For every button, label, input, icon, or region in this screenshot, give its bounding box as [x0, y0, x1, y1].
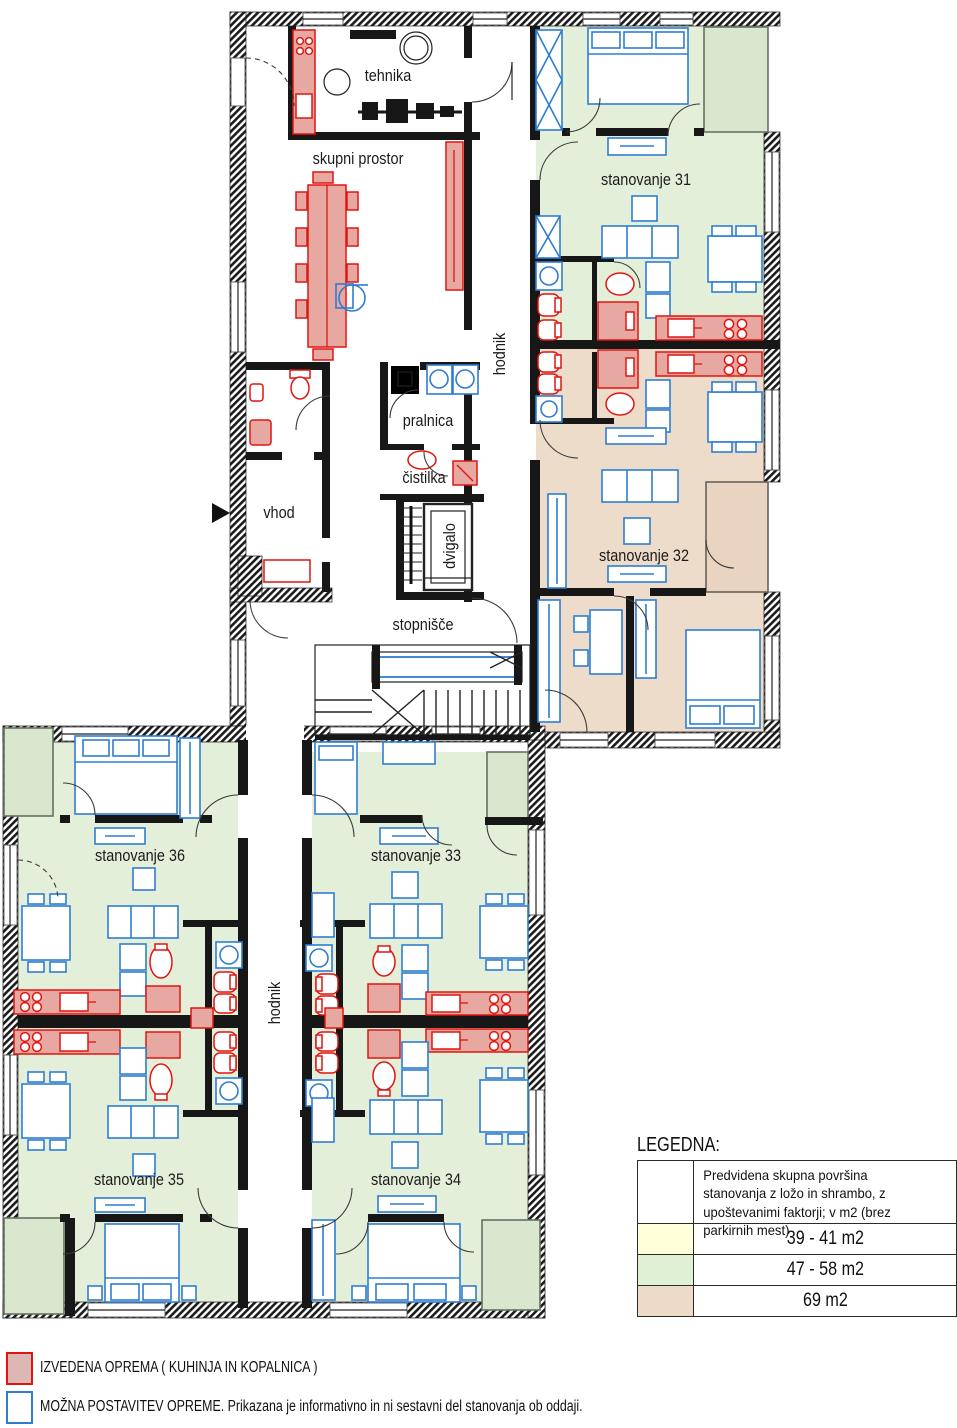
room-label-pralnica: pralnica	[403, 411, 454, 431]
legend-swatch-yellow	[638, 1224, 694, 1254]
common-room-cabinet	[446, 142, 463, 290]
common-bathroom-fixtures	[250, 370, 310, 445]
room-label-cistilka: čistilka	[402, 468, 445, 488]
entrance-arrow	[212, 503, 230, 523]
balcony-36	[4, 728, 53, 816]
room-label-skupni-prostor: skupni prostor	[313, 149, 404, 169]
legend-row-yellow: 39 - 41 m2	[638, 1223, 956, 1254]
balcony-35	[4, 1218, 64, 1314]
room-label-stanovanje-33: stanovanje 33	[371, 846, 461, 866]
red-door-marker-right	[325, 1008, 343, 1028]
key-label-izvedena: IZVEDENA OPREMA ( KUHINJA IN KOPALNICA )	[40, 1359, 317, 1377]
legend-swatch-green	[638, 1255, 694, 1285]
legend-header-row: Predvidena skupna površina stanovanja z …	[638, 1161, 956, 1223]
legend-value-green: 47 - 58 m2	[786, 1259, 863, 1281]
room-label-hodnik-top: hodnik	[490, 333, 510, 376]
laundry-machines	[391, 365, 478, 394]
room-label-dvigalo: dvigalo	[440, 523, 460, 569]
room-label-tehnika: tehnika	[365, 66, 412, 86]
room-label-vhod: vhod	[263, 503, 294, 523]
legend-swatch-tan	[638, 1286, 694, 1316]
entrance-mat	[264, 560, 310, 582]
room-label-stanovanje-31: stanovanje 31	[601, 170, 691, 190]
legend-header-text: Predvidena skupna površina stanovanja z …	[694, 1161, 938, 1223]
key-label-mozna: MOŽNA POSTAVITEV OPREME. Prikazana je in…	[40, 1398, 583, 1416]
room-label-stanovanje-34: stanovanje 34	[371, 1170, 461, 1190]
room-label-stanovanje-36: stanovanje 36	[95, 846, 185, 866]
legend-header-swatch	[638, 1161, 694, 1223]
legend-title: LEGEDNA:	[637, 1134, 720, 1157]
legend-row-tan: 69 m2	[638, 1285, 956, 1316]
room-label-stanovanje-35: stanovanje 35	[94, 1170, 184, 1190]
loggia-33	[487, 752, 528, 818]
legend-value-yellow: 39 - 41 m2	[786, 1228, 863, 1250]
legend-row-green: 47 - 58 m2	[638, 1254, 956, 1285]
key-swatch-izvedena	[6, 1352, 33, 1385]
room-label-hodnik-bottom: hodnik	[265, 982, 285, 1025]
legend-table: Predvidena skupna površina stanovanja z …	[637, 1160, 957, 1317]
red-door-marker-left	[191, 1008, 213, 1028]
corridor-opening	[246, 725, 304, 743]
legend-value-tan: 69 m2	[803, 1290, 848, 1312]
key-swatch-mozna	[6, 1391, 33, 1424]
floor-plan-page: .b{fill:#fff;stroke:#2e7dd2;stroke-width…	[0, 0, 957, 1428]
balcony-34	[482, 1220, 540, 1310]
common-room-table	[296, 172, 358, 360]
room-label-stanovanje-32: stanovanje 32	[599, 546, 689, 566]
room-label-stopnisce: stopnišče	[392, 615, 453, 635]
balcony-32	[706, 482, 768, 592]
balcony-31	[704, 27, 768, 132]
